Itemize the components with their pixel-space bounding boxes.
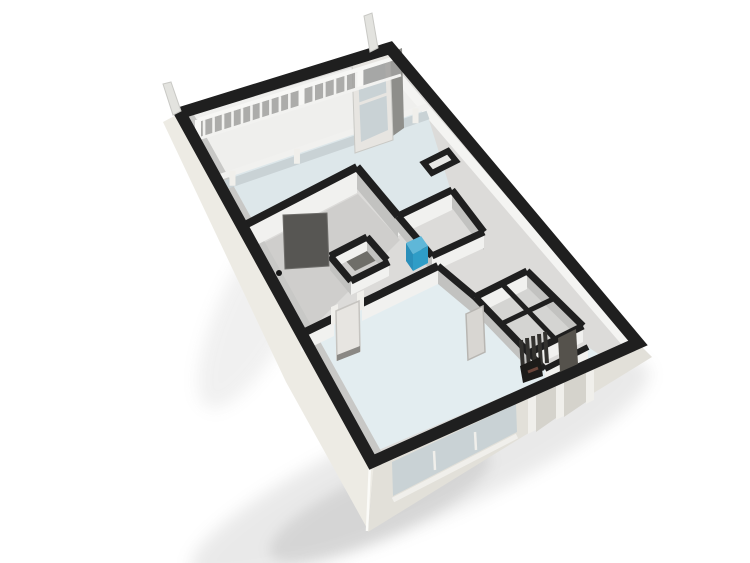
living-window-mullion-2 (475, 432, 476, 450)
hall-door-leaf (466, 306, 485, 360)
door-stop-dot (276, 270, 282, 276)
floor-plan-page (0, 0, 750, 563)
floor-plan-svg (0, 0, 750, 563)
north-corner-fin (364, 13, 378, 52)
west-corner-fin (163, 82, 181, 115)
living-window-mullion-1 (434, 451, 435, 470)
bedroom-open-door-leaf (283, 213, 329, 269)
stairs-bar (545, 332, 547, 363)
stairs-bar (521, 340, 523, 369)
